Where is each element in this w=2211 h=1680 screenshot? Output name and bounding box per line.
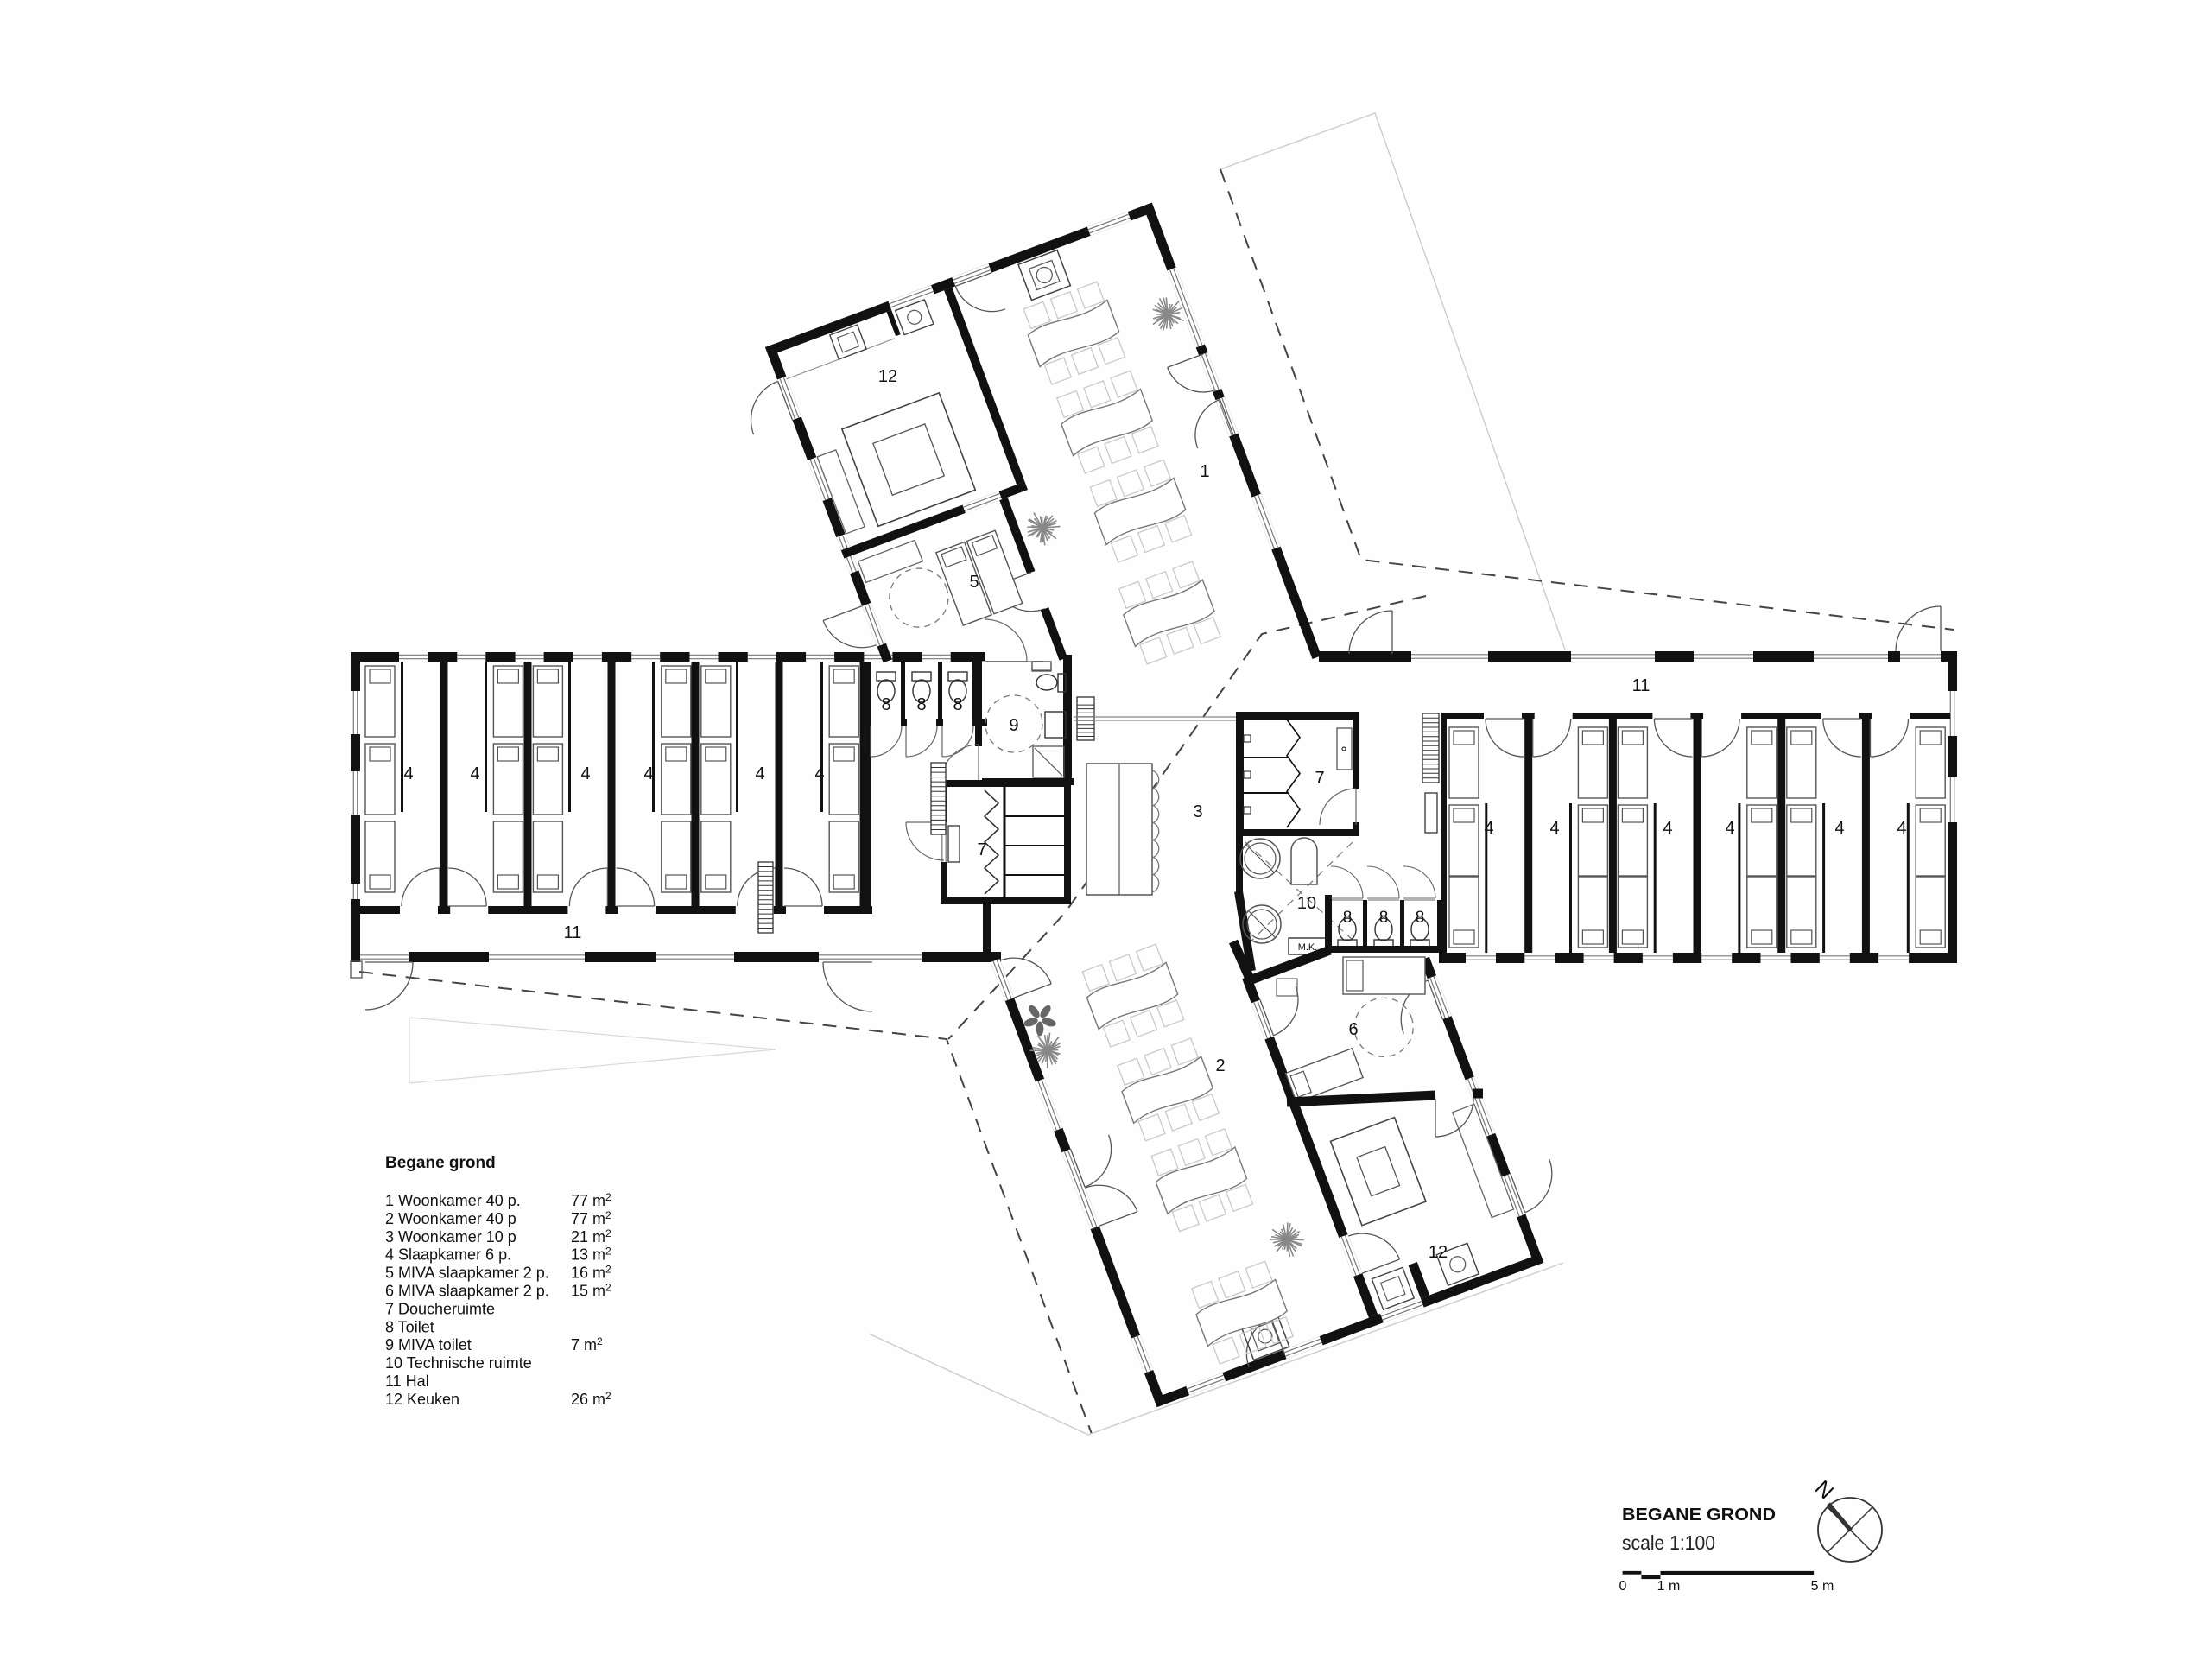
svg-text:4: 4 <box>755 764 764 783</box>
svg-text:15 m2: 15 m2 <box>571 1282 611 1300</box>
svg-text:16 m2: 16 m2 <box>571 1264 611 1282</box>
svg-text:4: 4 <box>814 764 824 783</box>
svg-text:4: 4 <box>1834 819 1844 838</box>
svg-text:0: 0 <box>1619 1579 1627 1594</box>
svg-text:12 Keuken: 12 Keuken <box>385 1391 459 1408</box>
svg-text:10: 10 <box>1297 894 1316 913</box>
svg-text:4: 4 <box>1725 819 1734 838</box>
svg-text:8: 8 <box>953 695 962 714</box>
svg-text:8 Toilet: 8 Toilet <box>385 1318 434 1335</box>
svg-text:21 m2: 21 m2 <box>571 1227 611 1246</box>
svg-text:4: 4 <box>580 764 590 783</box>
svg-text:11: 11 <box>1632 676 1650 695</box>
svg-text:4: 4 <box>470 764 479 783</box>
svg-text:8: 8 <box>1379 909 1389 927</box>
svg-text:4: 4 <box>403 764 413 783</box>
svg-text:4: 4 <box>1484 819 1493 838</box>
svg-text:8: 8 <box>916 695 926 714</box>
svg-text:77 m2: 77 m2 <box>571 1209 611 1227</box>
svg-text:26 m2: 26 m2 <box>571 1390 611 1408</box>
svg-text:1 m: 1 m <box>1657 1579 1681 1594</box>
svg-text:1: 1 <box>1200 462 1209 481</box>
svg-text:8: 8 <box>1343 909 1353 927</box>
svg-text:77 m2: 77 m2 <box>571 1191 611 1209</box>
svg-text:10 Technische ruimte: 10 Technische ruimte <box>385 1354 532 1372</box>
svg-text:5 m: 5 m <box>1811 1579 1834 1594</box>
svg-text:2 Woonkamer 40 p: 2 Woonkamer 40 p <box>385 1210 516 1227</box>
svg-text:9: 9 <box>1009 716 1018 735</box>
svg-text:1 Woonkamer 40 p.: 1 Woonkamer 40 p. <box>385 1192 521 1209</box>
svg-text:6: 6 <box>1348 1020 1358 1039</box>
svg-text:Begane grond: Begane grond <box>385 1154 496 1172</box>
svg-text:6 MIVA slaapkamer 2 p.: 6 MIVA slaapkamer 2 p. <box>385 1283 549 1300</box>
svg-text:9 MIVA toilet: 9 MIVA toilet <box>385 1336 472 1354</box>
svg-text:7 Doucheruimte: 7 Doucheruimte <box>385 1300 495 1317</box>
svg-text:8: 8 <box>1416 909 1425 927</box>
svg-text:scale 1:100: scale 1:100 <box>1622 1531 1715 1554</box>
svg-text:7: 7 <box>1315 769 1324 788</box>
svg-text:5 MIVA slaapkamer 2 p.: 5 MIVA slaapkamer 2 p. <box>385 1265 549 1282</box>
svg-text:8: 8 <box>881 695 890 714</box>
svg-text:3 Woonkamer 10 p: 3 Woonkamer 10 p <box>385 1228 516 1246</box>
svg-text:4: 4 <box>1549 819 1559 838</box>
svg-text:11: 11 <box>564 923 582 942</box>
svg-text:5: 5 <box>969 573 979 592</box>
svg-text:4 Slaapkamer 6 p.: 4 Slaapkamer 6 p. <box>385 1246 511 1264</box>
svg-text:4: 4 <box>1663 819 1672 838</box>
svg-text:3: 3 <box>1193 802 1202 821</box>
svg-text:4: 4 <box>1897 819 1906 838</box>
svg-text:2: 2 <box>1215 1056 1225 1075</box>
svg-text:4: 4 <box>643 764 653 783</box>
svg-text:BEGANE GROND: BEGANE GROND <box>1622 1506 1776 1525</box>
svg-text:12: 12 <box>878 367 897 386</box>
svg-text:11 Hal: 11 Hal <box>385 1373 429 1390</box>
svg-text:7: 7 <box>977 840 986 859</box>
svg-text:12: 12 <box>1429 1243 1448 1262</box>
svg-text:13 m2: 13 m2 <box>571 1246 611 1264</box>
